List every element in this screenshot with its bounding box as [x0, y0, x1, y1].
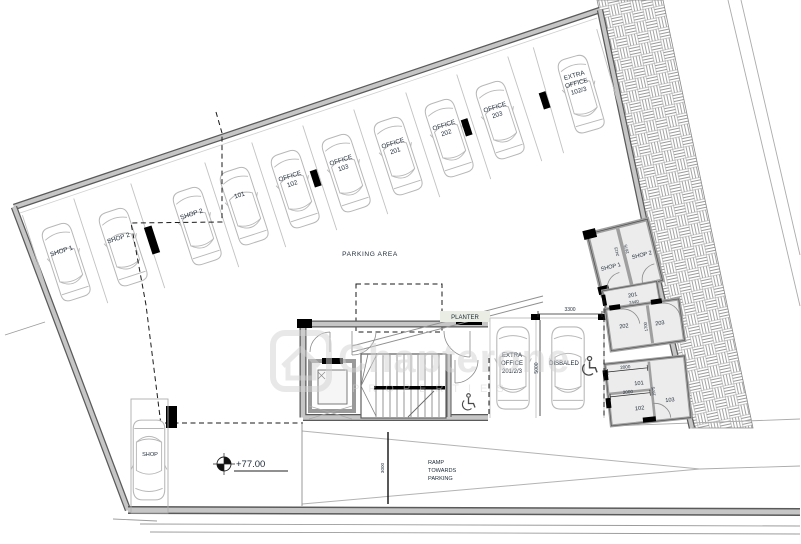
- level-value: +77.00: [236, 459, 265, 470]
- ramp-label: PARKING: [428, 476, 453, 482]
- shop-stall-bottom: SHOP: [131, 399, 168, 513]
- ramp-label: TOWARDS: [428, 468, 457, 474]
- room-label: 103: [665, 397, 675, 404]
- dimension-3300: 3300: [538, 307, 602, 317]
- svg-text:3300: 3300: [564, 307, 575, 313]
- svg-text:3000: 3000: [380, 462, 385, 473]
- rooms-101-102-103: 2000 2000 101 102 103 1975: [602, 356, 691, 426]
- room-label: 102: [635, 405, 645, 412]
- watermark-brand: Chapterone: [338, 337, 570, 381]
- room-label: 101: [634, 380, 644, 387]
- floor-plan-svg: SHOP 1 SHOP 2 SHOP 2 101 OFFICE102 OFFIC…: [0, 0, 801, 544]
- planter-label: PLANTER: [451, 315, 479, 321]
- stall-label: SHOP: [142, 452, 158, 458]
- ramp-label: RAMP: [428, 460, 444, 466]
- wheelchair-icon: [583, 356, 597, 375]
- ramp: 3000 RAMP TOWARDS PARKING: [302, 424, 700, 506]
- dimension-3000: 3000: [380, 432, 388, 504]
- level-marker: +77.00: [213, 453, 288, 475]
- wheelchair-icon: [462, 394, 475, 410]
- dim-label: 1975: [650, 386, 656, 396]
- parking-area-label: PARKING AREA: [342, 251, 398, 258]
- watermark-subtitle: PROPERTIES: [352, 383, 513, 395]
- floor-plan-page: SHOP 1 SHOP 2 SHOP 2 101 OFFICE102 OFFIC…: [0, 0, 801, 544]
